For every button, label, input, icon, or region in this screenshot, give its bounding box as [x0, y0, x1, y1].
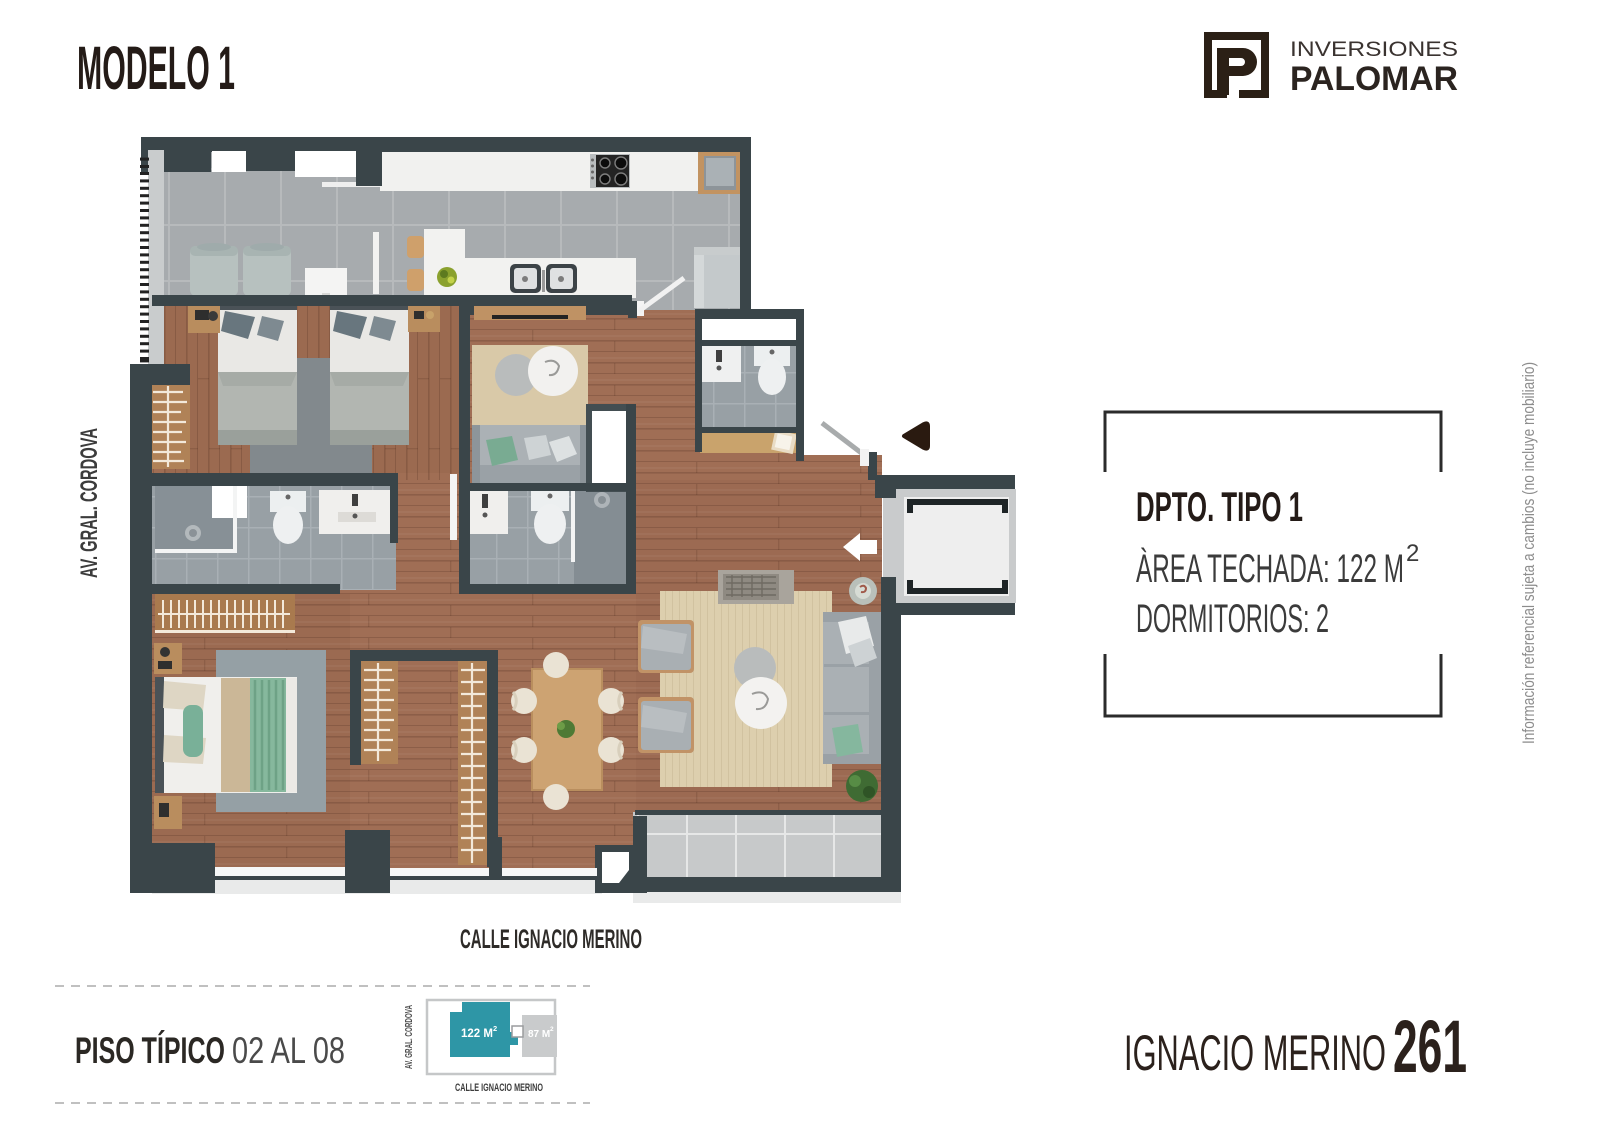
svg-text:MODELO 1: MODELO 1	[77, 34, 235, 102]
svg-text:261: 261	[1393, 1005, 1467, 1088]
svg-text:02 AL 08: 02 AL 08	[232, 1030, 345, 1071]
svg-text:CALLE IGNACIO MERINO: CALLE IGNACIO MERINO	[455, 1082, 543, 1094]
svg-text:DORMITORIOS: 2: DORMITORIOS: 2	[1136, 597, 1329, 641]
svg-text:INVERSIONES: INVERSIONES	[1290, 38, 1458, 61]
svg-text:AV. GRAL. CORDOVA: AV. GRAL. CORDOVA	[76, 428, 103, 578]
svg-text:2: 2	[493, 1024, 497, 1033]
svg-text:2: 2	[550, 1026, 554, 1033]
svg-text:DPTO. TIPO 1: DPTO. TIPO 1	[1136, 483, 1303, 530]
svg-text:CALLE IGNACIO MERINO: CALLE IGNACIO MERINO	[460, 924, 642, 954]
svg-text:87 M: 87 M	[528, 1029, 550, 1040]
svg-text:PALOMAR: PALOMAR	[1290, 60, 1458, 98]
svg-text:122 M: 122 M	[461, 1028, 493, 1040]
svg-text:AV. GRAL. CORDOVA: AV. GRAL. CORDOVA	[404, 1005, 415, 1069]
svg-text:2: 2	[1406, 540, 1419, 567]
svg-text:IGNACIO MERINO: IGNACIO MERINO	[1124, 1025, 1386, 1081]
svg-text:ÀREA TECHADA: 122 M: ÀREA TECHADA: 122 M	[1136, 546, 1404, 591]
svg-text:Información referencial sujeta: Información referencial sujeta a cambios…	[1519, 362, 1538, 744]
svg-text:PISO TÍPICO: PISO TÍPICO	[75, 1030, 225, 1071]
